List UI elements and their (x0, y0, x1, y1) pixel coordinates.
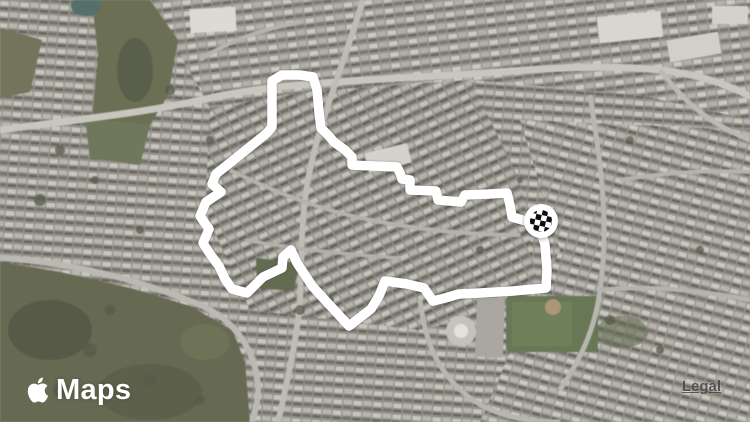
satellite-imagery (0, 0, 750, 422)
legal-link[interactable]: Legal (682, 378, 721, 395)
checkered-flag-icon (524, 204, 558, 238)
finish-marker (524, 204, 558, 238)
maps-logo-label: Maps (56, 376, 131, 405)
apple-logo-icon (23, 375, 53, 405)
apple-maps-logo: Maps (23, 375, 131, 405)
satellite-map[interactable]: Maps Legal (0, 0, 750, 422)
